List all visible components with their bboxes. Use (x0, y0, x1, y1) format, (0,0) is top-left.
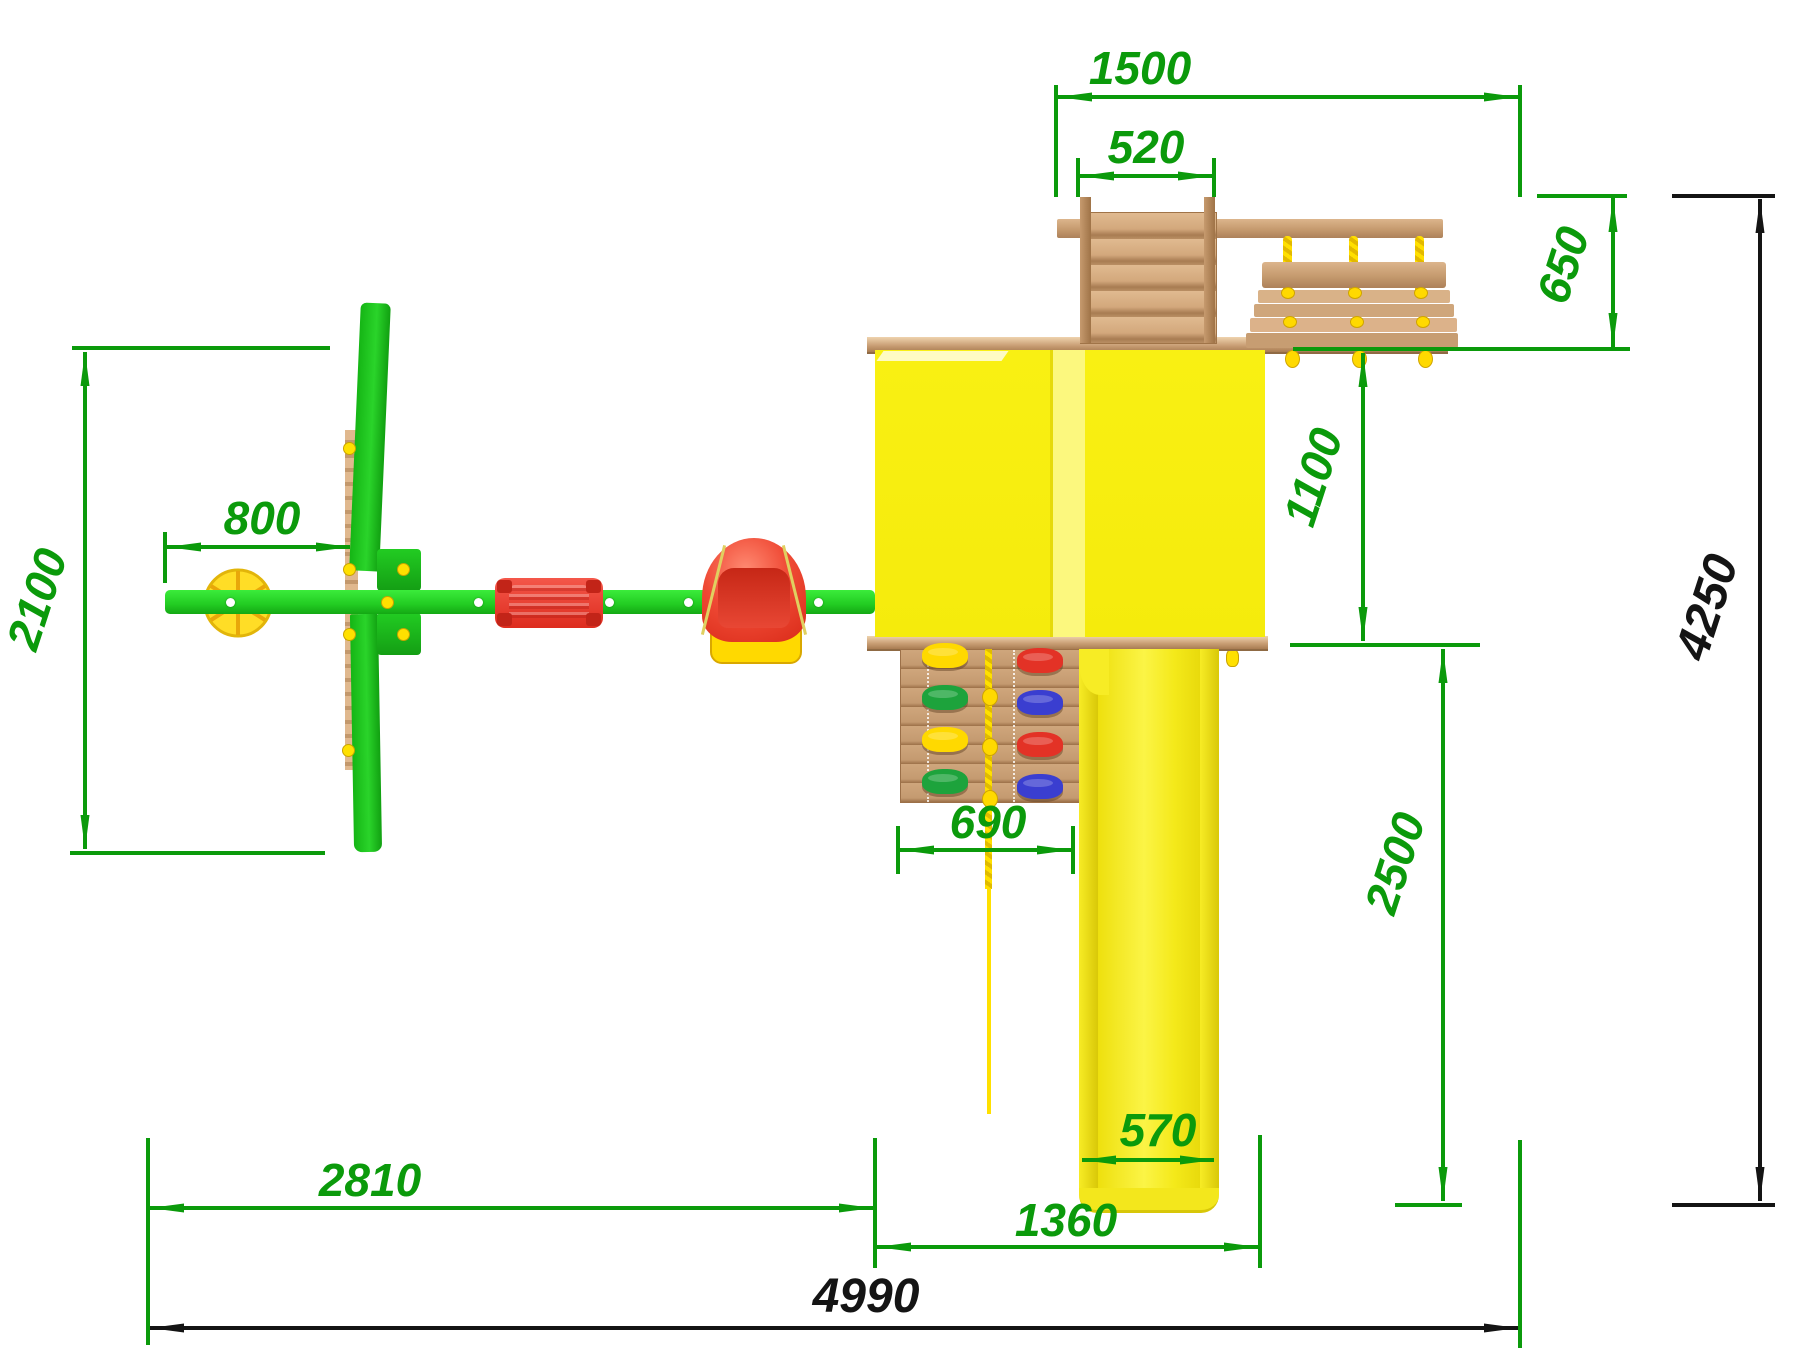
dim-label-520: 520 (1108, 121, 1185, 173)
extension-lines (70, 85, 1630, 1348)
dim-label-2810: 2810 (318, 1154, 422, 1206)
playground-plan-drawing: 1500 520 650 1100 2500 4250 800 2100 690… (0, 0, 1800, 1353)
dim-label-2100: 2100 (0, 542, 77, 657)
dim-label-690: 690 (950, 796, 1027, 848)
dim-label-1360: 1360 (1015, 1194, 1118, 1246)
dim-label-4990: 4990 (812, 1270, 920, 1323)
dim-label-4250: 4250 (1665, 548, 1749, 667)
dim-label-570: 570 (1120, 1104, 1197, 1156)
dim-label-1500: 1500 (1089, 42, 1192, 94)
dim-label-800: 800 (224, 492, 301, 544)
dim-label-2500: 2500 (1354, 806, 1436, 921)
dim-label-650: 650 (1526, 220, 1599, 309)
dim-label-1100: 1100 (1273, 422, 1353, 533)
dimension-layer: 1500 520 650 1100 2500 4250 800 2100 690… (0, 0, 1800, 1353)
dimension-lines (85, 97, 1613, 1247)
